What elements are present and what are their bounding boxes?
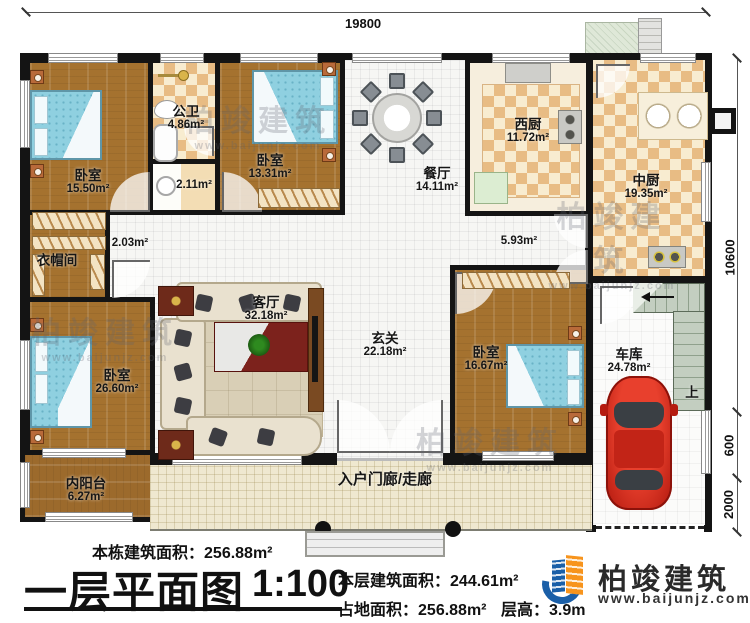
car-mirror xyxy=(600,404,608,416)
nightstand xyxy=(30,430,44,444)
label-dining: 餐厅14.11m² xyxy=(416,166,458,194)
label-washroom: 2.11m² xyxy=(176,179,212,192)
kitchen-counter xyxy=(638,92,708,140)
nightstand xyxy=(322,148,336,162)
window xyxy=(640,53,696,63)
label-cloakroom: 衣帽间 xyxy=(37,253,78,268)
label-hall-small: 2.03m² xyxy=(112,237,148,250)
label-bedroom-top-mid: 卧室13.31m² xyxy=(249,153,292,181)
stairs-up-label: 上 xyxy=(685,385,699,400)
chimney-box xyxy=(710,108,736,134)
stove xyxy=(648,246,686,268)
label-hall-mid: 5.93m² xyxy=(501,235,537,248)
sink xyxy=(156,176,176,196)
wardrobe-hatch xyxy=(258,188,340,208)
nightstand xyxy=(30,70,44,84)
dining-chair xyxy=(389,147,405,163)
brand-logo-icon xyxy=(540,556,590,608)
dimension-right-mid: 600 xyxy=(721,435,736,457)
window xyxy=(701,162,711,222)
brand-website: www.baijunjz.com xyxy=(598,590,750,606)
stairs-arrow xyxy=(648,296,674,298)
window xyxy=(48,53,118,63)
window xyxy=(701,410,711,474)
kitchen-cabinet xyxy=(474,172,508,204)
label-foyer: 玄关22.18m² xyxy=(364,331,407,359)
end-table xyxy=(158,430,194,460)
dining-chair xyxy=(389,73,405,89)
label-balcony: 内阳台6.27m² xyxy=(66,476,107,504)
window xyxy=(492,53,570,63)
right-dimension-line xyxy=(737,58,738,533)
wardrobe-hatch xyxy=(32,236,106,250)
sofa xyxy=(160,318,206,430)
chaise xyxy=(186,416,322,456)
faucet-knob xyxy=(178,70,189,81)
floor-area: 本层建筑面积：244.61m² xyxy=(338,567,519,591)
tv xyxy=(312,316,318,382)
window xyxy=(20,80,30,148)
bed xyxy=(252,70,338,144)
label-bathroom: 公卫4.86m² xyxy=(168,104,204,132)
window xyxy=(352,53,442,63)
nightstand xyxy=(30,164,44,178)
car xyxy=(606,376,672,510)
window xyxy=(20,340,30,410)
car-rear-window xyxy=(615,470,663,490)
floor-plan-page: { "palette":{"wall":"#141414","wood":"#a… xyxy=(0,0,750,623)
outdoor-steps xyxy=(638,18,662,57)
label-west-kitchen: 西厨11.72m² xyxy=(507,117,549,145)
window xyxy=(482,451,554,461)
wardrobe-hatch xyxy=(90,254,105,290)
label-bedroom-top-left: 卧室15.50m² xyxy=(67,168,110,196)
plan-scale: 1:100 xyxy=(252,563,349,606)
plant xyxy=(248,334,270,356)
stairs-arrowhead xyxy=(641,292,650,302)
window xyxy=(20,462,30,508)
entry-steps xyxy=(305,531,445,557)
bed xyxy=(30,90,102,160)
dimension-right-upper: 10600 xyxy=(723,239,738,275)
car-windshield xyxy=(614,402,664,428)
outdoor-pad xyxy=(585,22,639,57)
faucet xyxy=(158,74,180,77)
nightstand xyxy=(30,318,44,332)
dining-table xyxy=(372,93,422,143)
title-underline xyxy=(24,607,342,611)
window xyxy=(45,512,133,522)
dining-chair xyxy=(426,110,442,126)
porch-column xyxy=(445,521,461,537)
label-bedroom-right: 卧室16.67m² xyxy=(465,345,508,373)
label-living: 客厅32.18m² xyxy=(245,295,288,323)
label-porch: 入户门廊/走廊 xyxy=(338,472,432,489)
car-mirror xyxy=(670,404,678,416)
window xyxy=(42,448,126,458)
wardrobe-hatch xyxy=(462,272,570,289)
label-bedroom-left: 卧室26.60m² xyxy=(96,368,139,396)
dimension-top: 19800 xyxy=(345,16,381,31)
wardrobe-hatch xyxy=(32,212,106,230)
bed xyxy=(30,336,92,428)
nightstand xyxy=(568,412,582,426)
garage-door-dashed xyxy=(596,526,704,529)
dimension-right-lower: 2000 xyxy=(721,490,736,519)
room-porch xyxy=(150,458,592,531)
entry-threshold xyxy=(337,458,443,461)
top-dimension-line xyxy=(25,12,708,13)
kitchen-sink-unit xyxy=(505,63,551,83)
car-roof xyxy=(614,430,664,468)
dining-chair xyxy=(352,110,368,126)
end-table xyxy=(158,286,194,316)
nightstand xyxy=(322,62,336,76)
window xyxy=(160,53,204,63)
label-main-kitchen: 中厨19.35m² xyxy=(625,173,668,201)
window xyxy=(240,53,318,63)
bed xyxy=(506,344,584,408)
label-garage: 车库24.78m² xyxy=(608,347,651,375)
stove xyxy=(558,110,582,144)
nightstand xyxy=(568,326,582,340)
